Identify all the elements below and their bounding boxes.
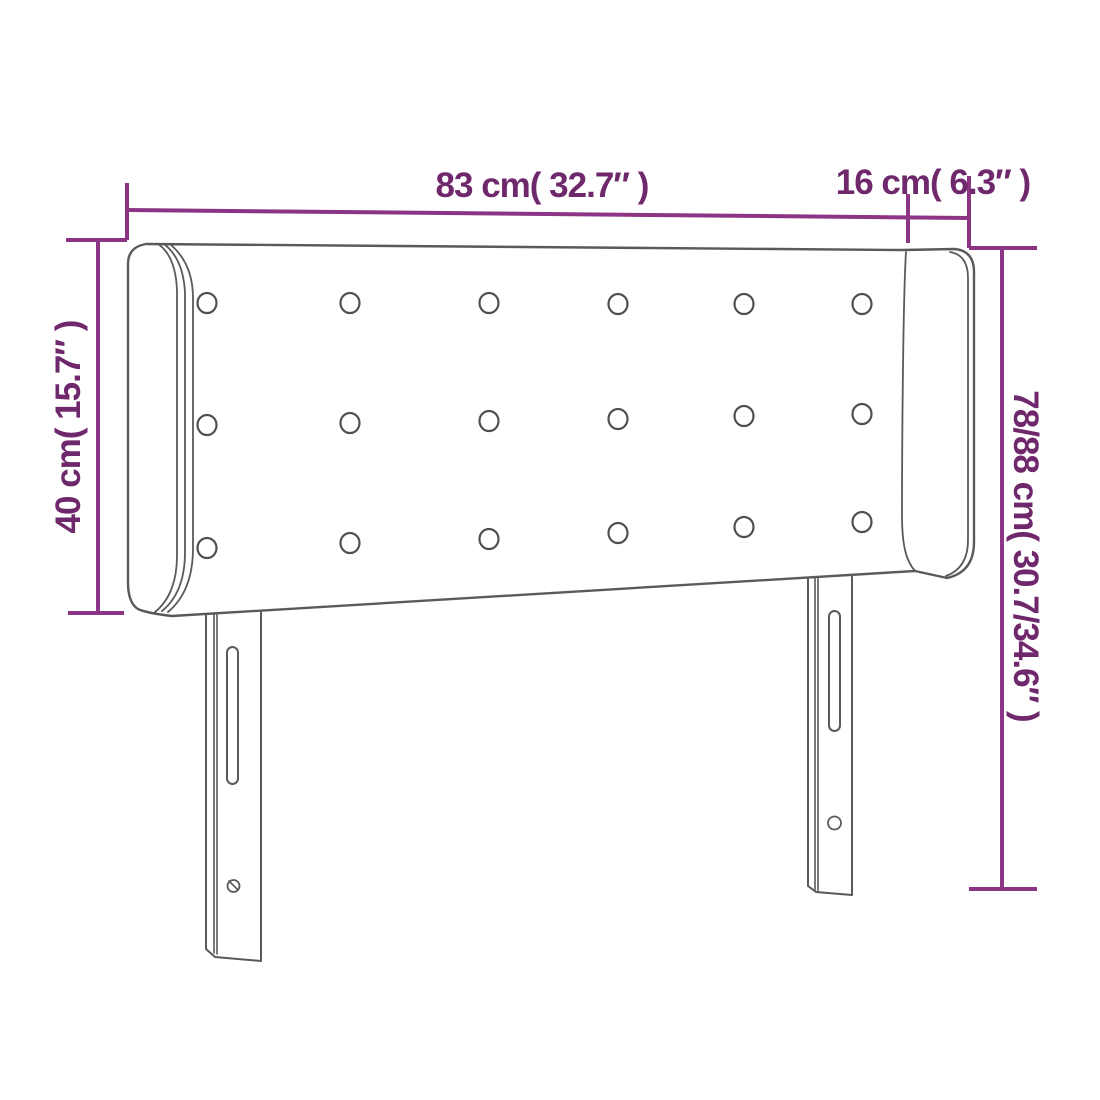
label-width-83cm: 83 cm( 32.7″ ) [436, 166, 649, 205]
left-leg [206, 606, 261, 961]
left-leg-screw-slot [229, 881, 238, 890]
right-leg-screw-hole [828, 817, 841, 830]
right-leg-side-edge [815, 578, 818, 891]
label-height-40cm: 40 cm( 15.7″ ) [49, 321, 88, 534]
label-ear-16cm: 16 cm( 6.3″ ) [836, 163, 1030, 202]
headboard-outline [128, 244, 974, 616]
top-dim-line [127, 210, 969, 218]
right-leg [808, 573, 852, 895]
left-leg-slot [227, 647, 238, 784]
label-total-height-78-88cm: 78/88 cm( 30.7/34.6″ ) [1006, 390, 1045, 721]
headboard-drawing [128, 244, 974, 961]
diagram-canvas: 83 cm( 32.7″ ) 16 cm( 6.3″ ) 40 cm( 15.7… [0, 0, 1100, 1100]
left-leg-side-edge [214, 610, 217, 954]
dimension-diagram: 83 cm( 32.7″ ) 16 cm( 6.3″ ) 40 cm( 15.7… [0, 0, 1100, 1100]
right-leg-slot [829, 611, 840, 731]
